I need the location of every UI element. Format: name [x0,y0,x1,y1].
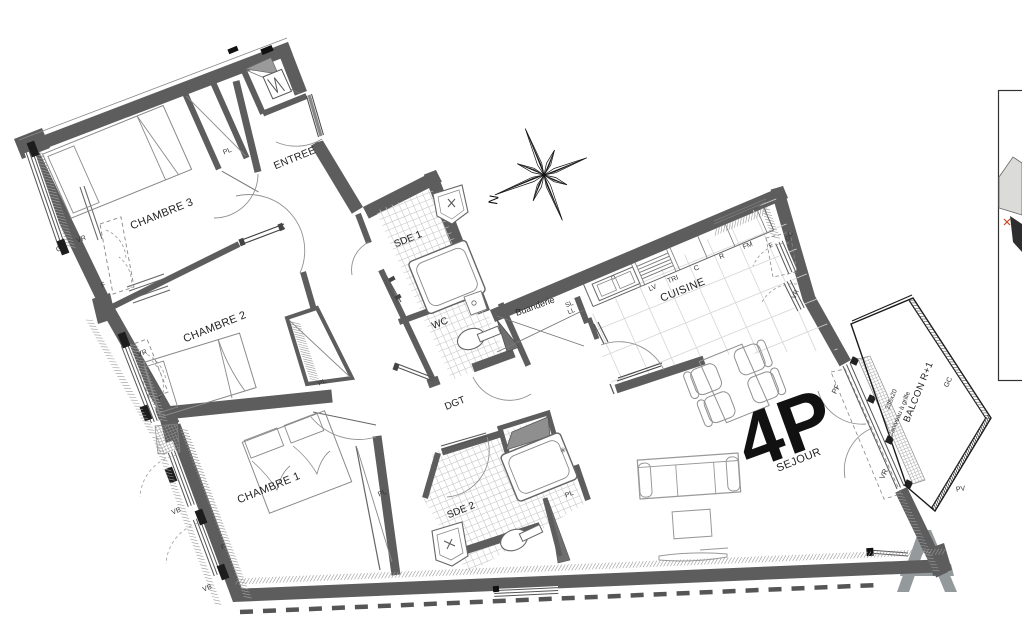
svg-text:✳: ✳ [560,446,567,455]
